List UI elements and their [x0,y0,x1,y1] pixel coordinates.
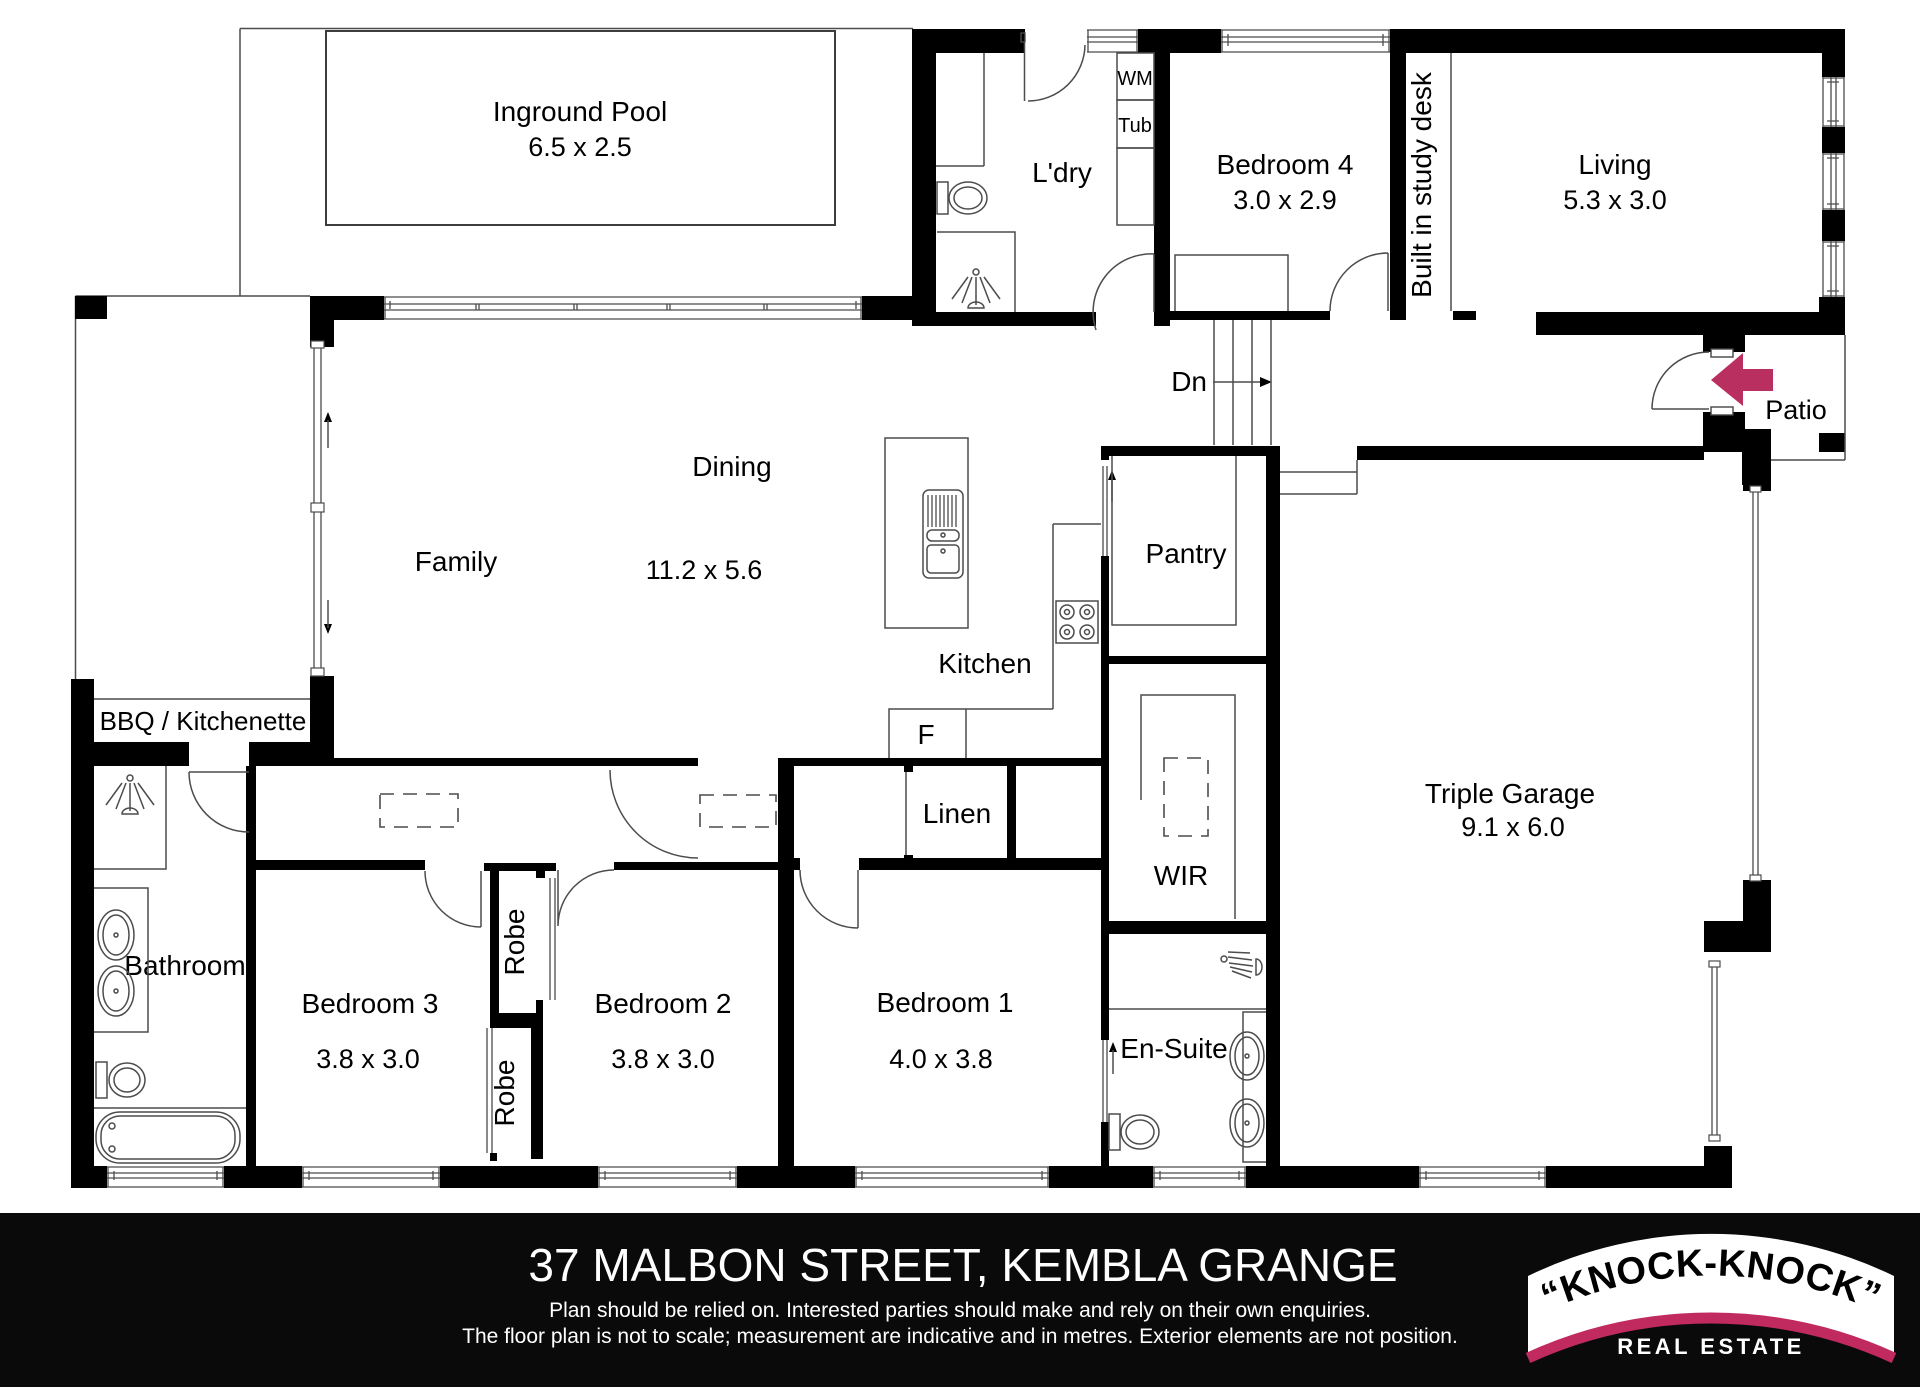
svg-text:3.0 x 2.9: 3.0 x 2.9 [1233,185,1337,215]
svg-text:Robe: Robe [489,1060,520,1127]
svg-text:Dn: Dn [1171,366,1207,397]
svg-text:4.0 x 3.8: 4.0 x 3.8 [889,1044,993,1074]
svg-text:5.3 x 3.0: 5.3 x 3.0 [1563,185,1667,215]
svg-text:Triple Garage: Triple Garage [1425,778,1595,809]
svg-text:Built in study desk: Built in study desk [1406,71,1437,298]
svg-text:Linen: Linen [923,798,992,829]
svg-text:Bedroom 3: Bedroom 3 [302,988,439,1019]
svg-text:3.8 x 3.0: 3.8 x 3.0 [316,1044,420,1074]
svg-text:En-Suite: En-Suite [1120,1033,1227,1064]
svg-text:Kitchen: Kitchen [938,648,1031,679]
svg-text:Robe: Robe [499,909,530,976]
svg-text:Bedroom 2: Bedroom 2 [595,988,732,1019]
svg-text:Family: Family [415,546,497,577]
svg-text:F: F [917,719,934,750]
svg-text:Tub: Tub [1118,115,1152,137]
svg-text:BBQ / Kitchenette: BBQ / Kitchenette [100,706,307,736]
svg-text:WM: WM [1117,68,1153,90]
svg-text:The floor plan is not to scale: The floor plan is not to scale; measurem… [462,1325,1458,1348]
svg-text:9.1 x 6.0: 9.1 x 6.0 [1461,812,1565,842]
svg-text:L'dry: L'dry [1032,157,1092,188]
svg-text:11.2 x 5.6: 11.2 x 5.6 [646,555,763,585]
svg-text:Bedroom 1: Bedroom 1 [877,987,1014,1018]
svg-text:Bathroom: Bathroom [124,950,245,981]
svg-text:Plan should be relied on. Inte: Plan should be relied on. Interested par… [549,1299,1371,1322]
svg-text:Inground Pool: Inground Pool [493,96,667,127]
svg-text:37 MALBON STREET, KEMBLA GRANG: 37 MALBON STREET, KEMBLA GRANGE [528,1239,1397,1291]
svg-text:Living: Living [1578,149,1651,180]
svg-text:6.5 x 2.5: 6.5 x 2.5 [528,132,632,162]
svg-text:Pantry: Pantry [1146,538,1227,569]
svg-text:Bedroom 4: Bedroom 4 [1217,149,1354,180]
svg-text:3.8 x 3.0: 3.8 x 3.0 [611,1044,715,1074]
svg-text:REAL ESTATE: REAL ESTATE [1617,1334,1805,1359]
svg-text:Patio: Patio [1765,395,1827,425]
svg-text:Dining: Dining [692,451,771,482]
svg-text:WIR: WIR [1154,860,1208,891]
